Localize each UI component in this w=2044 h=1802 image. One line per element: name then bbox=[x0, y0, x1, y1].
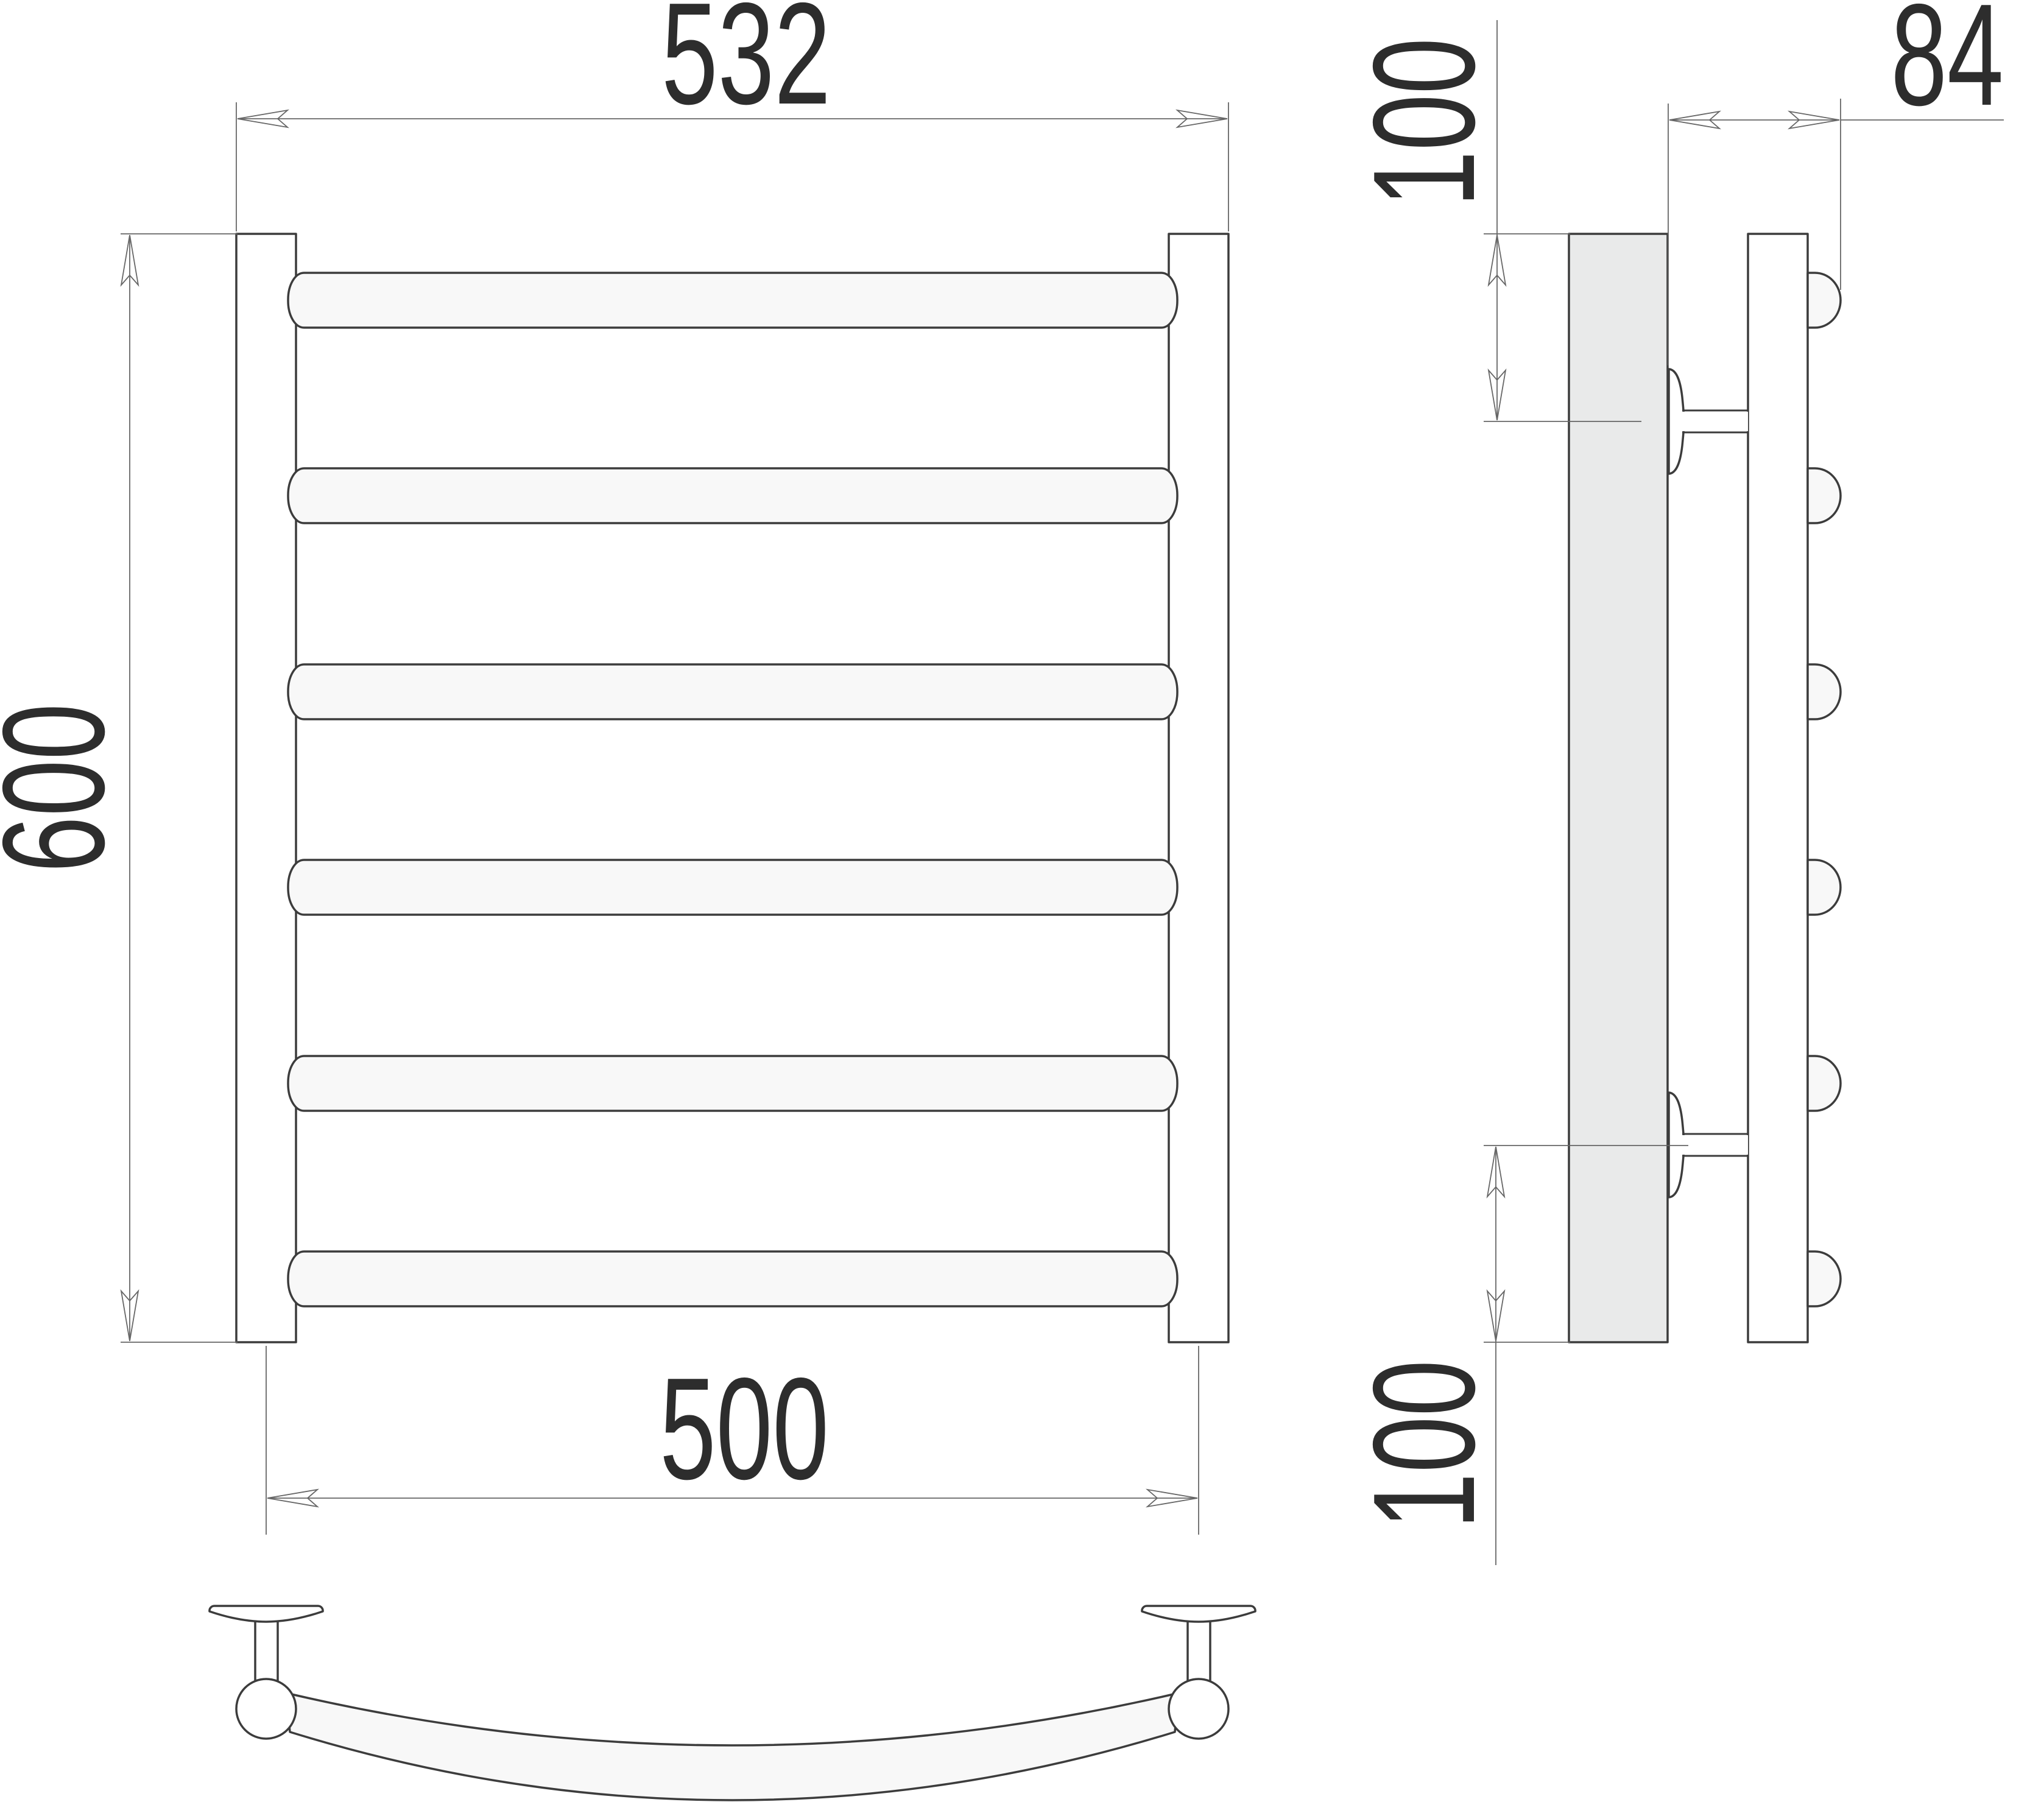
bracket-stem-left bbox=[255, 1617, 278, 1681]
bracket-arm bbox=[1682, 412, 1748, 431]
right-post bbox=[1169, 234, 1228, 1342]
towel-bar-1 bbox=[288, 273, 1177, 328]
towel-bar-6 bbox=[288, 1251, 1177, 1306]
dim-100-top-label: 100 bbox=[1343, 38, 1505, 207]
dim-84-label: 84 bbox=[1891, 0, 2003, 136]
towel-bar-3 bbox=[288, 664, 1177, 719]
technical-drawing: 532 600 500 bbox=[0, 0, 2044, 1802]
towel-bar-2 bbox=[288, 468, 1177, 523]
post-section-left bbox=[236, 1679, 296, 1739]
drawing-sheet: 532 600 500 bbox=[0, 0, 2044, 1802]
bracket-arm bbox=[1682, 1135, 1748, 1155]
left-post bbox=[236, 234, 296, 1342]
post-section-right bbox=[1169, 1679, 1228, 1739]
dim-600-label: 600 bbox=[0, 703, 135, 873]
towel-bar-4 bbox=[288, 860, 1177, 915]
bracket-stem-right bbox=[1188, 1617, 1210, 1681]
dim-100-bottom-label: 100 bbox=[1343, 1360, 1505, 1529]
post-profile bbox=[1748, 234, 1808, 1342]
wall-section bbox=[1569, 234, 1668, 1342]
towel-bar-5 bbox=[288, 1056, 1177, 1111]
dim-532-label: 532 bbox=[661, 0, 831, 135]
dim-500-label: 500 bbox=[660, 1348, 829, 1510]
